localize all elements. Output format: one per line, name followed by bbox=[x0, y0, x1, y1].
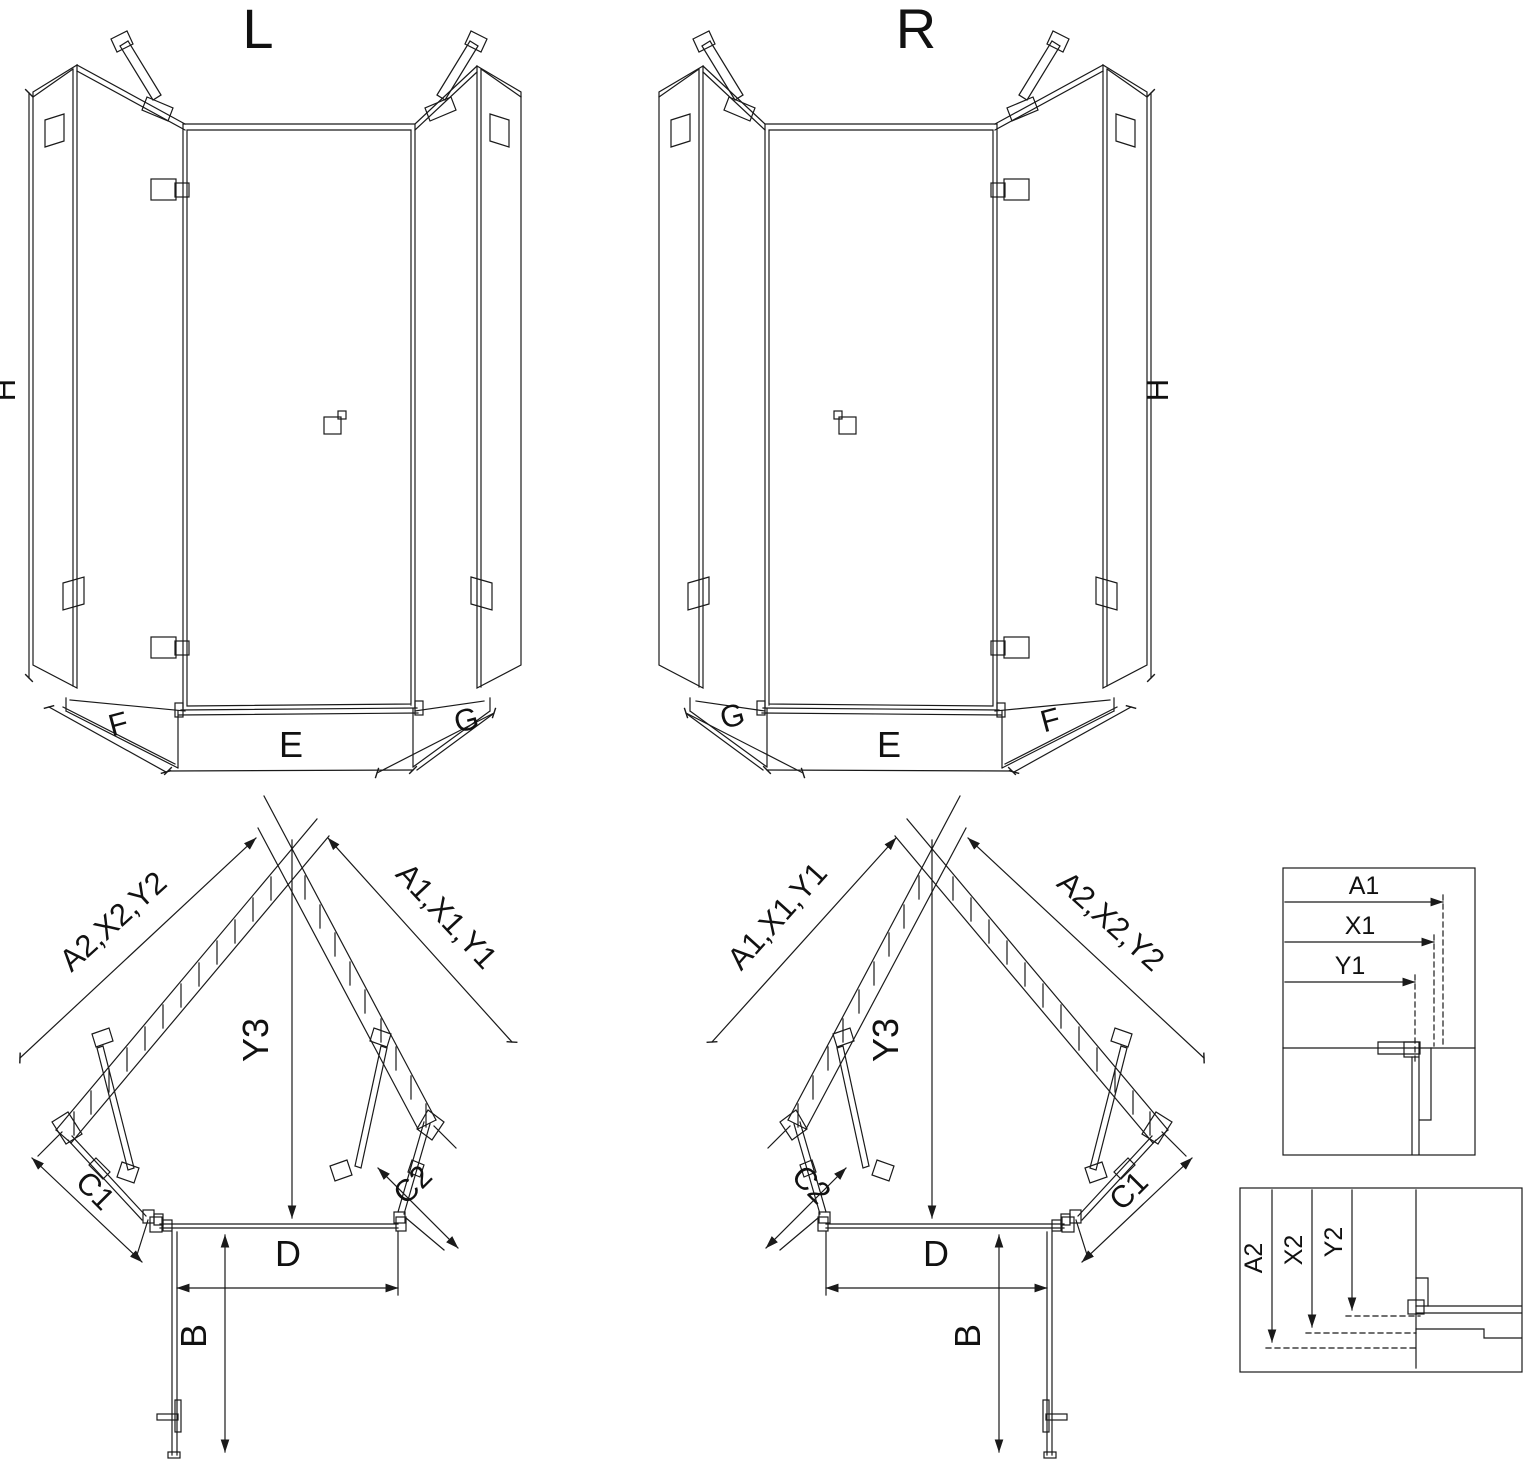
dim-label-h-left: H bbox=[0, 379, 22, 401]
shower-enclosure-technical-drawing: L H F E G R H G E F A2,X2,Y2 A1,X1,Y1 Y3… bbox=[0, 0, 1530, 1461]
plan-right-depth-label: Y3 bbox=[865, 1018, 906, 1062]
detail-a1-label: A1 bbox=[1349, 872, 1380, 900]
plan-right-door-label: D bbox=[923, 1233, 949, 1274]
variant-title-right: R bbox=[896, 0, 936, 60]
drawing-canvas: L H F E G R H G E F A2,X2,Y2 A1,X1,Y1 Y3… bbox=[0, 0, 1530, 1461]
plan-right-door-open-label: B bbox=[947, 1324, 988, 1348]
detail-x2-label: X2 bbox=[1280, 1235, 1308, 1266]
dim-label-e-left: E bbox=[279, 724, 303, 765]
dim-label-h-right: H bbox=[1140, 379, 1175, 401]
detail-y1-label: Y1 bbox=[1335, 952, 1366, 980]
variant-title-left: L bbox=[242, 0, 273, 60]
plan-left-door-open-label: B bbox=[173, 1324, 214, 1348]
plan-left-depth-label: Y3 bbox=[235, 1018, 276, 1062]
detail-y2-label: Y2 bbox=[1320, 1227, 1348, 1258]
detail-x1-label: X1 bbox=[1345, 912, 1376, 940]
plan-left-door-label: D bbox=[275, 1233, 301, 1274]
detail-a2-label: A2 bbox=[1240, 1243, 1268, 1274]
dim-label-e-right: E bbox=[877, 724, 901, 765]
